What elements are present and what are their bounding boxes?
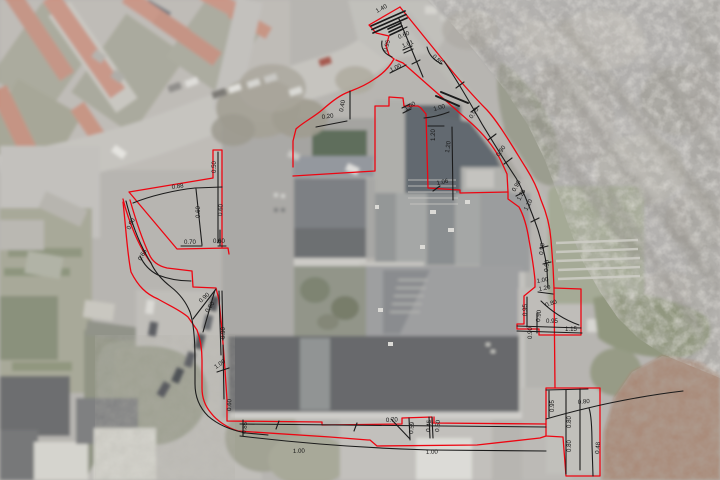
svg-text:0.90: 0.90 [527,327,534,339]
svg-text:0.80: 0.80 [578,398,591,406]
svg-text:1.20: 1.20 [430,129,437,141]
svg-text:0.45: 0.45 [425,419,433,432]
svg-text:0.60: 0.60 [217,203,225,216]
svg-text:0.59: 0.59 [408,421,416,434]
svg-text:1.00: 1.00 [426,449,439,456]
svg-text:0.95: 0.95 [549,400,556,412]
svg-text:0.50: 0.50 [434,419,442,432]
svg-text:0.70: 0.70 [386,416,399,424]
svg-text:1.00: 1.00 [293,448,306,455]
svg-text:0.48: 0.48 [594,441,602,454]
svg-text:0.60: 0.60 [195,206,202,218]
svg-text:0.95: 0.95 [546,318,558,325]
svg-text:0.80: 0.80 [566,440,573,452]
svg-text:1.15: 1.15 [565,326,577,333]
svg-text:0.50: 0.50 [211,161,218,173]
svg-text:0.70: 0.70 [184,239,196,246]
svg-text:0.80: 0.80 [566,416,573,428]
svg-text:0.90: 0.90 [220,327,227,339]
svg-text:0.85: 0.85 [241,421,249,434]
svg-text:0.90: 0.90 [535,309,543,322]
svg-text:0.60: 0.60 [226,398,233,411]
svg-text:0.90: 0.90 [543,259,551,272]
svg-text:0.95: 0.95 [522,304,529,316]
svg-text:0.60: 0.60 [213,238,225,245]
